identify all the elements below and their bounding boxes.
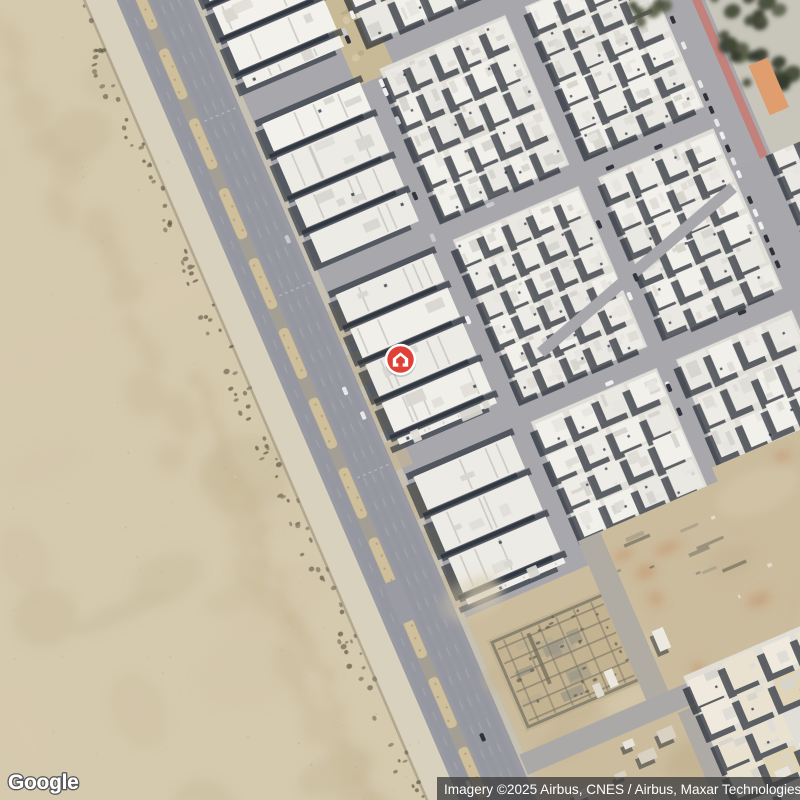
svg-text:Imagery ©2025 Airbus, CNES / A: Imagery ©2025 Airbus, CNES / Airbus, Max… — [444, 782, 800, 797]
svg-text:Google: Google — [8, 771, 79, 794]
